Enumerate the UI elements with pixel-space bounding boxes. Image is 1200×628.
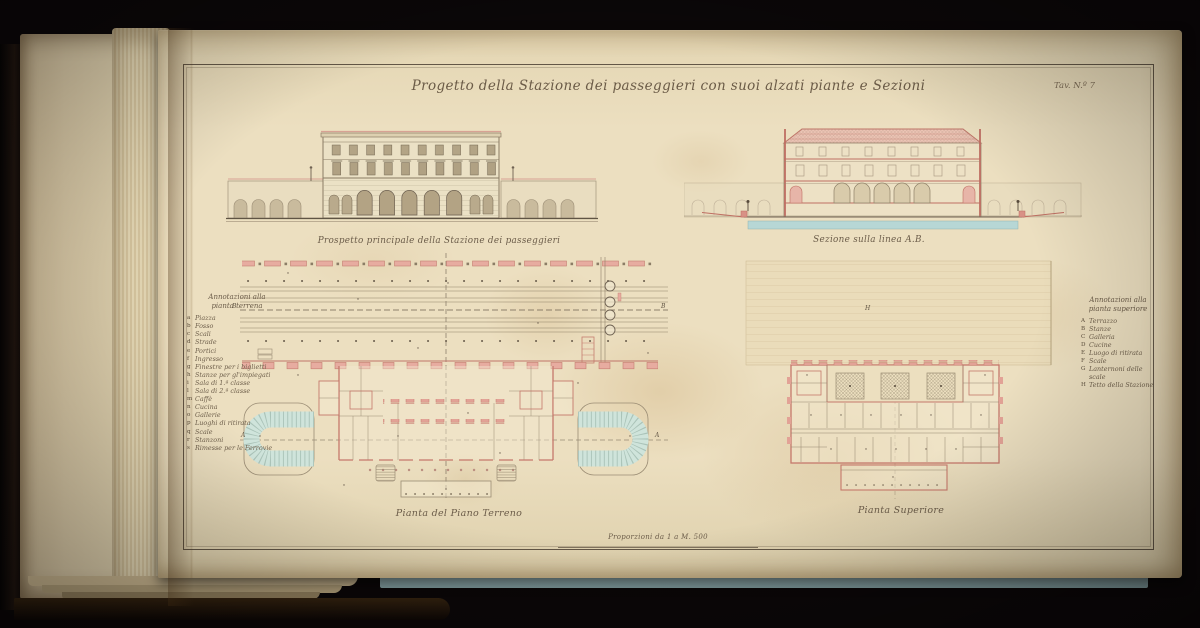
legend-item: BStanze (1081, 325, 1155, 333)
legend-item: ePortici (187, 347, 287, 355)
legend-item: FScale (1081, 357, 1155, 365)
plate-page: Progetto della Stazione dei passeggieri … (158, 30, 1182, 578)
legend-item: gFinestre per i biglietti (187, 363, 287, 371)
legend-item: hStanze per gl'impiegati (187, 371, 287, 379)
legend-item: aPiazza (187, 314, 287, 322)
legend-item: bFosso (187, 322, 287, 330)
legend-item: lSala di 2.ª classe (187, 387, 287, 395)
legend-item: pLuoghi di ritirata (187, 419, 287, 427)
legend-ground-floor: Annotazioni alla pianta terrena aPiazza … (187, 293, 287, 452)
legend-item: GLanternoni delle scale (1081, 365, 1155, 381)
legend-item: oGallerie (187, 411, 287, 419)
section-caption: Sezione sulla linea A.B. (729, 235, 1009, 245)
elevation-drawing (226, 115, 598, 231)
legend-item: iSala di 1.ª classe (187, 379, 287, 387)
legend-item: DCucine (1081, 341, 1155, 349)
legend-item: qScale (187, 428, 287, 436)
legend-item: cScali (187, 330, 287, 338)
track-axis-label-right: B (661, 303, 665, 310)
legend-left-title-line1: Annotazioni alla (187, 293, 287, 302)
sheet-number-label: Tav. N.º 7 (1054, 81, 1095, 91)
legend-item: HTetto della Stazione (1081, 381, 1155, 389)
legend-right-title-line2: pianta superiore (1081, 305, 1155, 314)
legend-right-title-line1: Annotazioni alla (1081, 296, 1155, 305)
legend-item: mCaffè (187, 395, 287, 403)
section-drawing (684, 115, 1082, 233)
upper-plan-caption: Pianta Superiore (801, 505, 1001, 516)
legend-item: nCucina (187, 403, 287, 411)
legend-item: dStrade (187, 338, 287, 346)
scale-rule-line (558, 547, 758, 548)
legend-item: ELuogo di ritirata (1081, 349, 1155, 357)
elevation-caption: Prospetto principale della Stazione dei … (279, 236, 599, 246)
legend-item: CGalleria (1081, 333, 1155, 341)
scale-caption: Proporzioni da 1 a M. 500 (578, 533, 738, 541)
ground-plan-caption: Pianta del Piano Terreno (359, 508, 559, 519)
roof-label: H (865, 305, 870, 312)
plate-frame: Progetto della Stazione dei passeggieri … (183, 64, 1154, 550)
upper-floor-and-roof-drawing (741, 257, 1061, 503)
plan-axis-label-right: A (655, 432, 659, 439)
ground-floor-and-tracks-drawing (238, 253, 670, 501)
plate-title: Progetto della Stazione dei passeggieri … (184, 78, 1153, 94)
legend-item: rStanzoni (187, 436, 287, 444)
legend-item: fIngresso (187, 355, 287, 363)
legend-item: ATerrazzo (1081, 317, 1155, 325)
legend-item: sRimesse per le Ferrovie (187, 444, 287, 452)
legend-left-title-line2: pianta terrena (187, 302, 287, 311)
book-cover-bottom-edge (14, 598, 450, 620)
photo-background: Progetto della Stazione dei passeggieri … (0, 0, 1200, 628)
legend-upper-floor: Annotazioni alla pianta superiore ATerra… (1081, 296, 1155, 389)
